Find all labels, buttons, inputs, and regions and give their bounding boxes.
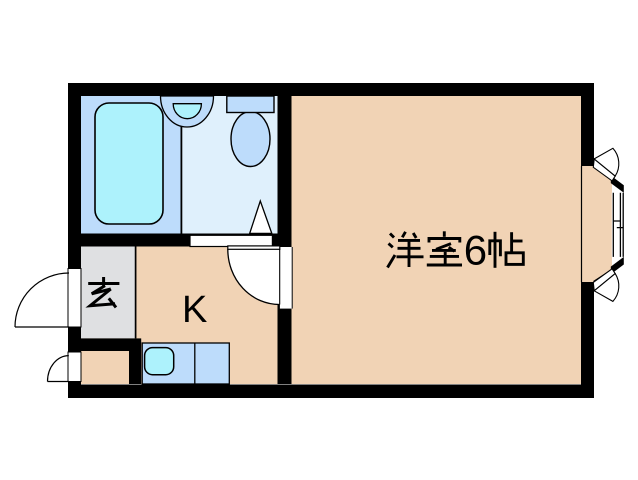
svg-text:6: 6 [464, 227, 487, 274]
svg-text:K: K [182, 289, 207, 331]
